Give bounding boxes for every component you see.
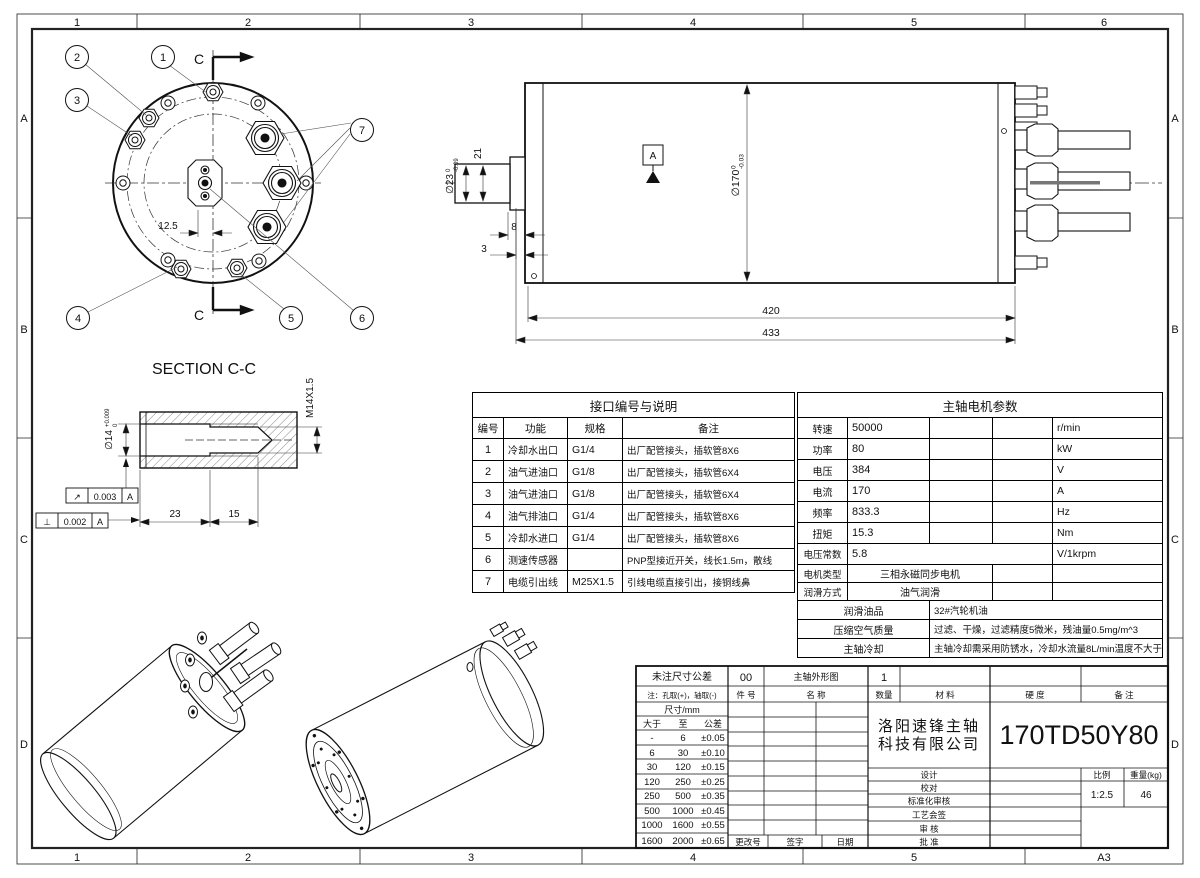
table-row: 电压常数5.8V/1krpm <box>798 544 1163 565</box>
tolerance-title: 未注尺寸公差 <box>652 670 712 683</box>
cable <box>1058 213 1130 231</box>
zone-label: 4 <box>690 17 696 29</box>
dim-8-label: 8 <box>511 222 517 233</box>
motor-parameters-table: 主轴电机参数 转速50000r/min 功率80kW 电压384V 电流170A… <box>797 392 1163 658</box>
balloon-number: 3 <box>74 95 80 107</box>
dim-text: ∅170 <box>730 170 742 197</box>
balloon-number: 7 <box>359 125 365 137</box>
table-row: 主轴冷却主轴冷却需采用防锈水，冷却水流量8L/min温度不大于25度。 <box>798 639 1163 658</box>
header-qty: 数量 <box>875 690 893 700</box>
date-label: 日期 <box>836 837 853 847</box>
weight-label: 重量(kg) <box>1130 770 1162 780</box>
dim-23-label: 23 <box>169 509 181 520</box>
header-part-no: 件 号 <box>736 690 755 700</box>
balloon-number: 6 <box>359 313 365 325</box>
tol-cell: ±0.25 <box>701 777 725 788</box>
tol-cell: 250 <box>644 791 660 802</box>
table-row: 润滑油品32#汽轮机油 <box>798 601 1163 620</box>
tol-header: 公差 <box>704 718 722 729</box>
zone-label: 5 <box>911 17 917 29</box>
weight-value: 46 <box>1140 790 1152 801</box>
tol-cell: 1600 <box>672 820 693 831</box>
offset-dim-label: 12.5 <box>158 221 178 232</box>
iso-view-rear <box>30 619 284 849</box>
table-row: 转速50000r/min <box>798 418 1163 439</box>
zone-label: 5 <box>911 852 917 864</box>
dim-sup: +0.009 <box>105 408 111 427</box>
dim-3-label: 3 <box>481 244 487 255</box>
dim-bore <box>118 424 142 456</box>
table-row: 5冷却水进口G1/4出厂配管接头，插软管8X6 <box>473 527 795 549</box>
tol-cell: 1000 <box>641 820 662 831</box>
sign-label: 工艺会签 <box>912 810 947 820</box>
tol-cell: 1600 <box>641 836 662 847</box>
zone-label: 1 <box>74 17 80 29</box>
balloon-number: 2 <box>74 52 80 64</box>
tol-cell: - <box>650 733 653 744</box>
interface-table: 接口编号与说明 编号 功能 规格 备注 1冷却水出口G1/4出厂配管接头，插软管… <box>472 392 795 593</box>
tol-cell: ±0.15 <box>701 762 725 773</box>
sign-label: 审 核 <box>919 824 939 834</box>
gdt-tolerance: 0.003 <box>94 492 117 502</box>
tol-cell: 2000 <box>672 836 693 847</box>
zone-label: 3 <box>468 852 474 864</box>
zone-label: A <box>20 113 28 125</box>
tolerance-note: 注：孔取(+)，轴取(-) <box>647 690 717 700</box>
signature-label: 签字 <box>786 837 803 847</box>
tol-cell: ±0.55 <box>701 820 725 831</box>
thread-label: M14X1.5 <box>305 378 316 418</box>
zone-label: 4 <box>690 852 696 864</box>
gdt-symbol: ⊥ <box>43 517 51 527</box>
gdt-tolerance: 0.002 <box>64 517 87 527</box>
tol-cell: ±0.05 <box>701 733 725 744</box>
scale-label: 比例 <box>1093 770 1110 780</box>
col-header: 编号 <box>473 418 504 439</box>
dim-sub: 0 <box>113 423 119 427</box>
col-header: 备注 <box>623 418 795 439</box>
title-block: 未注尺寸公差 00 主轴外形图 1 注：孔取(+)，轴取(-) 件 号 名 称 … <box>636 666 1168 848</box>
item-number: 00 <box>740 672 752 684</box>
front-view: C C 12.5 <box>66 46 374 330</box>
sign-labels: 设计 校对 标准化审核 工艺会签 审 核 批 准 <box>908 770 951 847</box>
dim-sup: 0 <box>731 165 738 169</box>
gdt-symbol: ↗ <box>73 492 81 502</box>
sign-label: 校对 <box>920 783 938 793</box>
zone-label: 2 <box>245 852 251 864</box>
col-header: 功能 <box>504 418 568 439</box>
zone-label: C <box>20 534 28 546</box>
side-view: A ∅170 0 -0.03 ∅23 0 -0.09 21 8 3 420 43… <box>445 83 1162 344</box>
table-row: 1冷却水出口G1/4出厂配管接头，插软管8X6 <box>473 439 795 461</box>
shaft-collar <box>510 157 525 210</box>
dim-sub: -0.03 <box>739 154 746 169</box>
scale-value: 1:2.5 <box>1091 790 1114 801</box>
tolerance-rows: -6±0.05 630±0.10 30120±0.15 120250±0.25 … <box>641 733 724 847</box>
tol-cell: 500 <box>675 791 691 802</box>
rear-cable-glands <box>1015 124 1130 241</box>
tol-cell: 6 <box>649 748 654 759</box>
zone-label: A <box>1171 113 1179 125</box>
tol-cell: ±0.45 <box>701 806 725 817</box>
gdt-frames: ↗ 0.003 A ⊥ 0.002 A <box>36 458 140 528</box>
sign-label: 批 准 <box>919 837 939 847</box>
tol-cell: ±0.65 <box>701 836 725 847</box>
table-row: 频率833.3Hz <box>798 502 1163 523</box>
dim-text: ∅14 <box>104 430 115 450</box>
table-row: 电流170A <box>798 481 1163 502</box>
dim-unit: 尺寸/mm <box>664 704 700 715</box>
table-row: 润滑方式油气润滑 <box>798 583 1163 601</box>
company-name-line2: 科技有限公司 <box>878 736 980 753</box>
interface-table-title: 接口编号与说明 <box>473 393 795 418</box>
tol-cell: ±0.35 <box>701 791 725 802</box>
tol-cell: 500 <box>644 806 660 817</box>
change-no-label: 更改号 <box>735 837 761 847</box>
dim-text: ∅23 <box>445 174 456 194</box>
company-name-line1: 洛阳速锋主轴 <box>878 718 980 735</box>
zone-label: 2 <box>245 17 251 29</box>
section-letter-top: C <box>194 51 204 67</box>
header-name: 名 称 <box>806 690 826 700</box>
iso-view-front <box>294 621 556 843</box>
table-row: 4油气排油口G1/4出厂配管接头，插软管8X6 <box>473 505 795 527</box>
sheet-size-label: A3 <box>1097 852 1110 864</box>
dim-420-label: 420 <box>762 305 780 317</box>
tol-cell: 6 <box>680 733 685 744</box>
tol-cell: ±0.10 <box>701 748 725 759</box>
col-header: 规格 <box>568 418 623 439</box>
cable <box>1058 131 1130 149</box>
zone-label: B <box>1171 324 1178 336</box>
spindle-body <box>525 83 1015 283</box>
gdt-datum: A <box>127 492 133 502</box>
table-row: 扭矩15.3Nm <box>798 523 1163 544</box>
sensor-rod <box>1030 181 1100 185</box>
table-row: 电压384V <box>798 460 1163 481</box>
offset-dim <box>180 210 232 237</box>
section-letter-bottom: C <box>194 307 204 323</box>
balloon-number: 1 <box>160 52 166 64</box>
sign-label: 标准化审核 <box>908 796 951 806</box>
center-plate <box>188 160 222 206</box>
tol-header: 大于 <box>643 718 661 729</box>
section-view: SECTION C-C ∅14 +0.009 0 M14X1.5 23 15 ↗… <box>36 361 322 528</box>
part-number: 170TD50Y80 <box>999 720 1158 750</box>
tol-cell: 120 <box>644 777 660 788</box>
dim-433-label: 433 <box>762 327 780 339</box>
tol-cell: 120 <box>675 762 691 773</box>
header-hardness: 硬 度 <box>1025 690 1045 700</box>
tol-header: 至 <box>678 719 687 729</box>
section-title: SECTION C-C <box>152 361 256 378</box>
table-row: 2油气进油口G1/8出厂配管接头，插软管6X4 <box>473 461 795 483</box>
datum-letter: A <box>650 151 657 162</box>
drawing-sheet: 1 2 3 4 5 6 1 2 3 4 5 A3 A B C D A B C D… <box>0 0 1200 878</box>
dim-21: 21 <box>473 147 484 159</box>
motor-table-title: 主轴电机参数 <box>798 393 1163 418</box>
zone-label: D <box>20 739 28 751</box>
gdt-datum: A <box>97 517 103 527</box>
balloon-number: 5 <box>288 313 294 325</box>
tol-cell: 250 <box>675 777 691 788</box>
table-row: 6测速传感器PNP型接近开关，线长1.5m，散线 <box>473 549 795 571</box>
item-qty: 1 <box>881 672 887 684</box>
tol-cell: 30 <box>647 762 658 773</box>
dim-15-label: 15 <box>228 509 240 520</box>
table-row: 3油气进油口G1/8出厂配管接头，插软管6X4 <box>473 483 795 505</box>
header-material: 材 料 <box>935 690 955 700</box>
dim-bore-label: ∅14 +0.009 0 <box>104 408 119 450</box>
sign-label: 设计 <box>920 770 938 780</box>
table-row: 7电缆引出线M25X1.5引线电缆直接引出，接铜线鼻 <box>473 571 795 593</box>
dim-sub: -0.09 <box>454 158 460 172</box>
zone-label: B <box>20 324 27 336</box>
table-row: 电机类型三相永磁同步电机 <box>798 565 1163 583</box>
table-row: 压缩空气质量过滤、干燥，过滤精度5微米，残油量0.5mg/m^3 <box>798 620 1163 639</box>
tol-cell: 1000 <box>672 806 693 817</box>
zone-label: 6 <box>1101 17 1107 29</box>
table-row: 功率80kW <box>798 439 1163 460</box>
item-name: 主轴外形图 <box>793 671 838 682</box>
zone-label: 1 <box>74 852 80 864</box>
dim-sup: 0 <box>446 168 452 172</box>
balloon-number: 4 <box>75 313 81 325</box>
zone-label: D <box>1171 739 1179 751</box>
header-remark: 备 注 <box>1114 690 1134 700</box>
tol-cell: 30 <box>678 748 689 759</box>
zone-label: C <box>1171 534 1179 546</box>
zone-label: 3 <box>468 17 474 29</box>
cable-glands <box>246 122 301 244</box>
